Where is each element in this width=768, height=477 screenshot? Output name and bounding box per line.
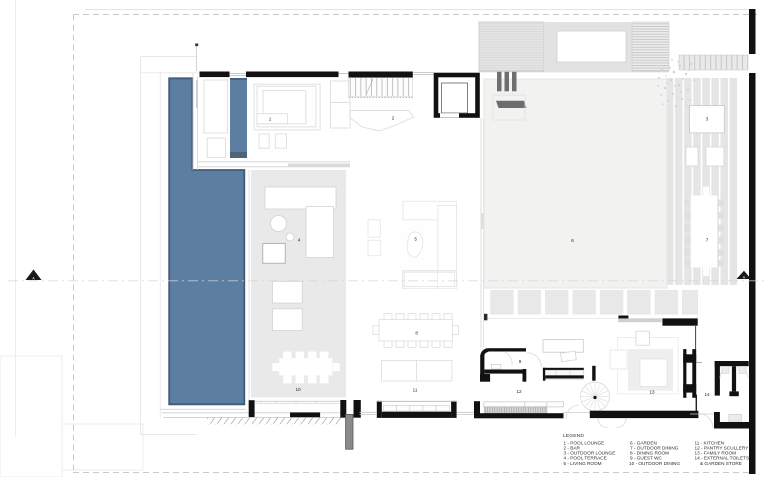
svg-text:7: 7 <box>706 238 709 243</box>
svg-text:2: 2 <box>392 116 395 121</box>
svg-text:9: 9 <box>519 359 522 364</box>
svg-text:6: 6 <box>571 238 574 243</box>
svg-text:12: 12 <box>516 389 522 394</box>
svg-text:5 - LIVING ROOM: 5 - LIVING ROOM <box>564 461 602 466</box>
svg-text:11: 11 <box>413 388 418 393</box>
svg-text:& GARDEN STORE: & GARDEN STORE <box>700 461 742 466</box>
svg-text:8: 8 <box>415 331 418 336</box>
svg-text:14: 14 <box>704 392 710 397</box>
svg-text:4: 4 <box>298 238 301 243</box>
svg-text:5: 5 <box>414 237 417 242</box>
svg-text:13: 13 <box>649 390 655 395</box>
svg-text:LEGEND: LEGEND <box>563 433 584 439</box>
svg-text:3: 3 <box>706 117 709 122</box>
svg-text:10: 10 <box>295 387 301 392</box>
svg-text:10 - OUTDOOR DINING: 10 - OUTDOOR DINING <box>629 461 680 466</box>
svg-text:1: 1 <box>269 117 272 122</box>
